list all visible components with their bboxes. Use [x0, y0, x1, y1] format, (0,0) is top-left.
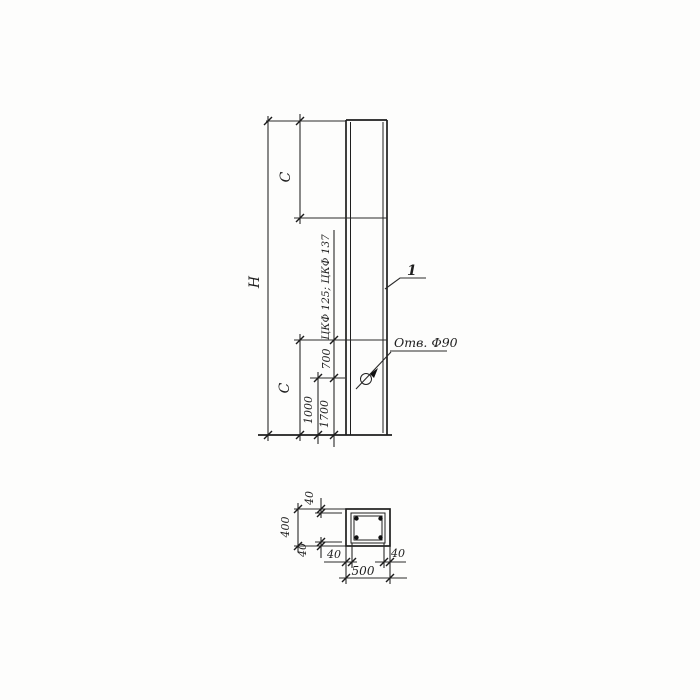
- position-marker-label: 1: [407, 263, 417, 279]
- dim-500-label: 500: [352, 564, 375, 578]
- dim-overall-height: H: [247, 116, 272, 441]
- hole-leader: [356, 352, 391, 389]
- dim-c-top: C: [278, 114, 304, 224]
- dim-c-top-label: C: [278, 171, 294, 182]
- dim-H-label: H: [247, 275, 263, 289]
- dim-cover-left-label: 40: [326, 548, 341, 561]
- dim-1000-label: 1000: [302, 396, 315, 424]
- dim-cover-right-label: 40: [390, 547, 405, 560]
- dim-1700-label: 1700: [318, 400, 331, 428]
- dim-cover-top-label: 40: [303, 491, 316, 506]
- dim-c-bottom-label: C: [277, 382, 293, 393]
- dim-700-label: 700: [320, 349, 333, 370]
- dim-section-height: 400: [279, 503, 346, 552]
- section-rebar-dots: [354, 516, 382, 539]
- drawing-sheet: H C C 1000 1700: [0, 0, 700, 700]
- series-note: ЦКФ 125; ЦКФ 137: [320, 234, 332, 340]
- dim-cover-top: 40: [303, 491, 342, 518]
- section-view: 400 40 40: [279, 491, 407, 584]
- column-transverse-lines: [294, 218, 387, 340]
- dim-c-bottom: C: [277, 334, 304, 441]
- elevation-view: H C C 1000 1700: [247, 114, 458, 447]
- position-marker-leader: [385, 278, 426, 289]
- technical-drawing-canvas: H C C 1000 1700: [0, 0, 700, 700]
- dim-400-label: 400: [279, 517, 292, 539]
- column-outline: [346, 120, 387, 435]
- dim-cover-bottom-label: 40: [296, 543, 309, 558]
- dim-section-width: 40 40 500: [324, 543, 407, 584]
- hole-label: Отв. Ф90: [394, 335, 458, 350]
- hole-callout: Отв. Ф90: [356, 335, 458, 389]
- position-marker: 1: [385, 263, 426, 289]
